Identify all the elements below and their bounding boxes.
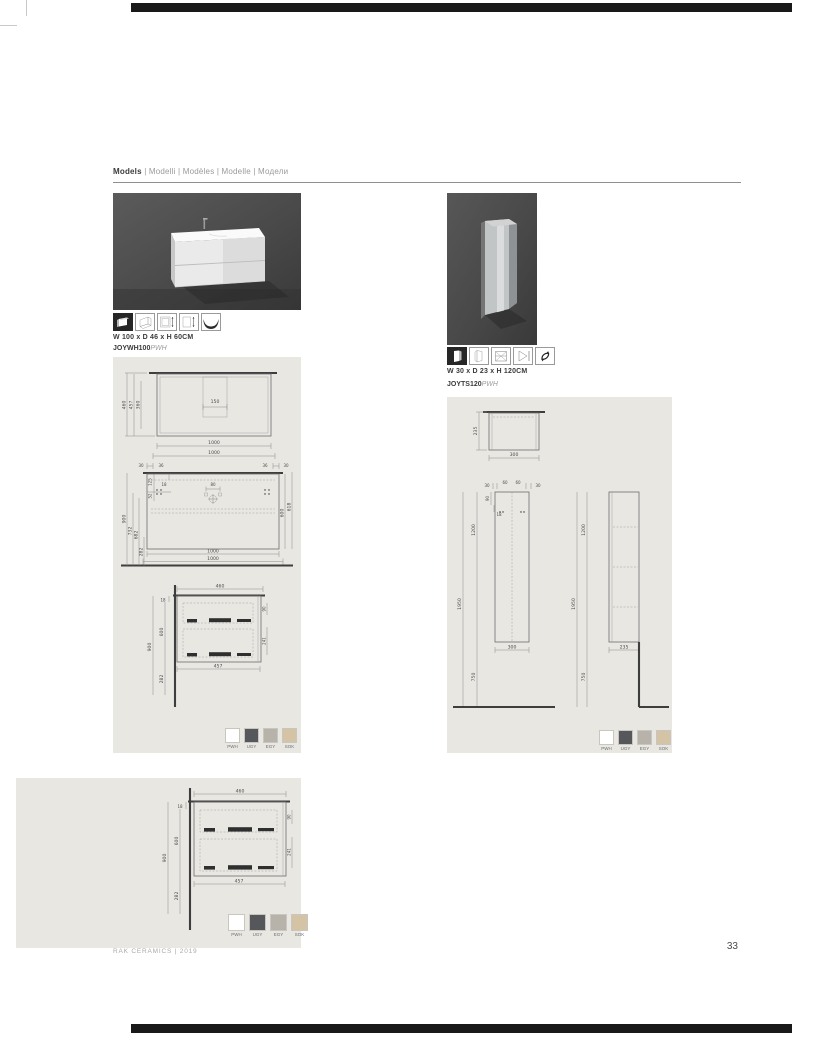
vanity-swatches: PWH UGY EGY SOK	[225, 728, 297, 749]
dim-front-30l: 30	[138, 463, 144, 468]
dim-tallfront-60b: 60	[515, 480, 521, 485]
vanity-front-view-drawing: 30 36 36 30 80 18 125	[113, 457, 301, 575]
footer-brand: RAK CERAMICS | 2019	[113, 948, 197, 955]
dim-top-457: 457	[129, 401, 135, 410]
swatch-egy-chip	[270, 914, 287, 931]
dim-front-36r: 36	[262, 463, 268, 468]
swatch-sok: SOK	[282, 728, 297, 749]
dim-front-1000b: 1000	[207, 556, 219, 562]
dim-top-1000b: 1000	[208, 450, 220, 456]
swatch-egy-label: EGY	[270, 932, 287, 937]
tall-unit-photo-render	[447, 193, 537, 345]
dim-top-460: 460	[122, 401, 128, 410]
page-title-bold: Models	[113, 167, 142, 176]
dim-side-460: 460	[216, 584, 225, 590]
swatch-pwh: PWH	[228, 914, 245, 937]
swatch-pwh: PWH	[599, 730, 614, 751]
swatch-pwh-chip	[225, 728, 240, 743]
swatch-ugy-chip	[618, 730, 633, 745]
vanity-icon-row	[113, 313, 221, 331]
crop-mark-vertical	[26, 0, 27, 16]
print-bar-bottom	[131, 1024, 792, 1033]
dim-tallfront-60a: 60	[502, 480, 508, 485]
header-rule	[113, 182, 741, 183]
swatch-ugy: UGY	[249, 914, 266, 937]
tall-unit-product-photo	[447, 193, 537, 345]
tall-unit-swatches: PWH UGY EGY SOK	[599, 730, 671, 751]
page-title: Models | Modelli | Modèles | Modelle | М…	[113, 167, 288, 176]
swatch-ugy: UGY	[244, 728, 259, 749]
swatch-egy-label: EGY	[637, 746, 652, 751]
dim-front-52: 52	[148, 493, 153, 499]
dim-front-732: 732	[128, 527, 134, 536]
swatch-egy: EGY	[263, 728, 278, 749]
dim-tallfront-30r: 30	[535, 483, 541, 488]
crop-mark-horizontal	[0, 25, 17, 26]
tall-side-dimensions-icon	[513, 347, 533, 365]
swatch-sok-label: SOK	[282, 744, 297, 749]
dim-tallfront-750: 750	[471, 673, 477, 682]
tall-unit-drawing-panel: 235 300 30 60 60 30 90 18 1200 1950 75	[447, 397, 672, 753]
vanity-photo-render	[113, 193, 301, 310]
tall-unit-icon-row	[447, 347, 555, 365]
swatch-sok-chip	[291, 914, 308, 931]
dim-side-lg-600: 600	[174, 837, 180, 846]
page-title-rest: | Modelli | Modèles | Modelle | Модели	[142, 167, 289, 176]
dim-front-282: 282	[139, 548, 145, 557]
dim-side-lg-90: 90	[287, 814, 292, 820]
dim-side-282: 282	[159, 675, 165, 684]
dim-side-lg-18: 18	[177, 804, 183, 809]
dim-front-600: 600	[280, 509, 286, 518]
dim-tallside-1950: 1950	[571, 598, 577, 610]
dim-tallfront-1200: 1200	[471, 524, 477, 536]
dim-side-lg-282: 282	[174, 892, 180, 901]
dim-side-600: 600	[159, 628, 165, 637]
swatch-sok-label: SOK	[291, 932, 308, 937]
dim-front-1000a: 1000	[207, 549, 219, 555]
dim-side-18: 18	[160, 598, 166, 603]
tall-unit-size: W 30 x D 23 x H 120CM	[447, 368, 527, 375]
swatch-sok: SOK	[291, 914, 308, 937]
swatch-ugy: UGY	[618, 730, 633, 751]
tall-unit-3d-icon	[447, 347, 467, 365]
swatch-sok-label: SOK	[656, 746, 671, 751]
vanity-code-main: JOYWH100	[113, 345, 150, 352]
side-dimensions-icon	[179, 313, 199, 331]
swatch-ugy-label: UGY	[618, 746, 633, 751]
unit-3d-icon	[113, 313, 133, 331]
dim-side-457: 457	[214, 664, 223, 670]
dim-front-618: 618	[287, 503, 293, 512]
dim-side-lg-900: 900	[162, 854, 168, 863]
print-bar-top	[131, 3, 792, 12]
catalog-page: Models | Modelli | Modèles | Modelle | М…	[0, 0, 828, 1038]
vanity-side-view-drawing: 460 18 600 900 282 90 241 457	[113, 579, 301, 724]
dim-talltop-235: 235	[473, 427, 479, 436]
swatch-pwh: PWH	[225, 728, 240, 749]
front-dimensions-icon	[157, 313, 177, 331]
dim-tallfront-30l: 30	[484, 483, 490, 488]
vanity-top-view-drawing: 150 460 457 360 1000 1000	[113, 361, 301, 461]
swatch-egy: EGY	[270, 914, 287, 937]
dim-side-lg-241: 241	[287, 848, 292, 856]
swatch-sok: SOK	[656, 730, 671, 751]
basin-profile-icon	[201, 313, 221, 331]
dim-basin-notch: 150	[211, 399, 220, 405]
vanity-drawing-panel: 150 460 457 360 1000 1000 30 36 36 30	[113, 357, 301, 753]
dim-front-36l: 36	[158, 463, 164, 468]
unit-perspective-icon	[135, 313, 155, 331]
dim-tallfront-300: 300	[508, 645, 517, 651]
tall-side-view-drawing: 1200 1950 750 235	[565, 472, 672, 722]
swatch-pwh-label: PWH	[225, 744, 240, 749]
vanity-side-detail-swatches: PWH UGY EGY SOK	[228, 914, 308, 937]
vanity-code: JOYWH100PWH	[113, 345, 167, 352]
swatch-sok-chip	[282, 728, 297, 743]
page-number: 33	[706, 941, 738, 952]
shelf-detail-icon	[491, 347, 511, 365]
tall-unit-code: JOYTS120PWH	[447, 381, 498, 388]
dim-front-125: 125	[148, 478, 153, 486]
swatch-egy-chip	[637, 730, 652, 745]
dim-top-1000a: 1000	[208, 440, 220, 446]
swatch-pwh-chip	[599, 730, 614, 745]
swatch-egy-chip	[263, 728, 278, 743]
dim-front-900: 900	[122, 515, 128, 524]
swatch-ugy-chip	[244, 728, 259, 743]
tall-unit-perspective-icon	[469, 347, 489, 365]
swatch-sok-chip	[656, 730, 671, 745]
dim-top-360: 360	[136, 401, 142, 410]
dim-front-18: 18	[161, 482, 167, 487]
swatch-pwh-label: PWH	[228, 932, 245, 937]
tall-front-view-drawing: 30 60 60 30 90 18 1200 1950 750 300	[447, 472, 567, 722]
dim-tallfront-90: 90	[485, 496, 490, 502]
reversible-door-icon	[535, 347, 555, 365]
dim-tallside-750: 750	[581, 673, 587, 682]
swatch-pwh-chip	[228, 914, 245, 931]
dim-tallside-1200: 1200	[581, 524, 587, 536]
swatch-egy-label: EGY	[263, 744, 278, 749]
swatch-pwh-label: PWH	[599, 746, 614, 751]
swatch-ugy-label: UGY	[244, 744, 259, 749]
dim-side-900: 900	[147, 643, 153, 652]
dim-side-lg-457: 457	[235, 879, 244, 885]
dim-front-682: 682	[134, 531, 140, 540]
vanity-size: W 100 x D 46 x H 60CM	[113, 334, 193, 341]
vanity-product-photo	[113, 193, 301, 310]
dim-front-tap-80: 80	[210, 482, 216, 487]
swatch-ugy-label: UGY	[249, 932, 266, 937]
dim-side-lg-460: 460	[236, 789, 245, 795]
dim-side-241: 241	[262, 637, 267, 645]
dim-talltop-300: 300	[510, 452, 519, 458]
swatch-ugy-chip	[249, 914, 266, 931]
dim-side-90: 90	[262, 606, 267, 612]
dim-tallfront-1950: 1950	[457, 598, 463, 610]
tall-top-view-drawing: 235 300	[467, 402, 587, 467]
dim-tallfront-18: 18	[496, 512, 502, 517]
vanity-code-finish: PWH	[150, 345, 166, 352]
swatch-egy: EGY	[637, 730, 652, 751]
dim-front-30r: 30	[283, 463, 289, 468]
dim-tallside-235: 235	[620, 645, 629, 651]
tall-unit-code-finish: PWH	[482, 381, 498, 388]
tall-unit-code-main: JOYTS120	[447, 381, 482, 388]
vanity-side-detail-panel: 460 18 600 900 282 90 241 457 PWH UGY	[16, 778, 301, 948]
